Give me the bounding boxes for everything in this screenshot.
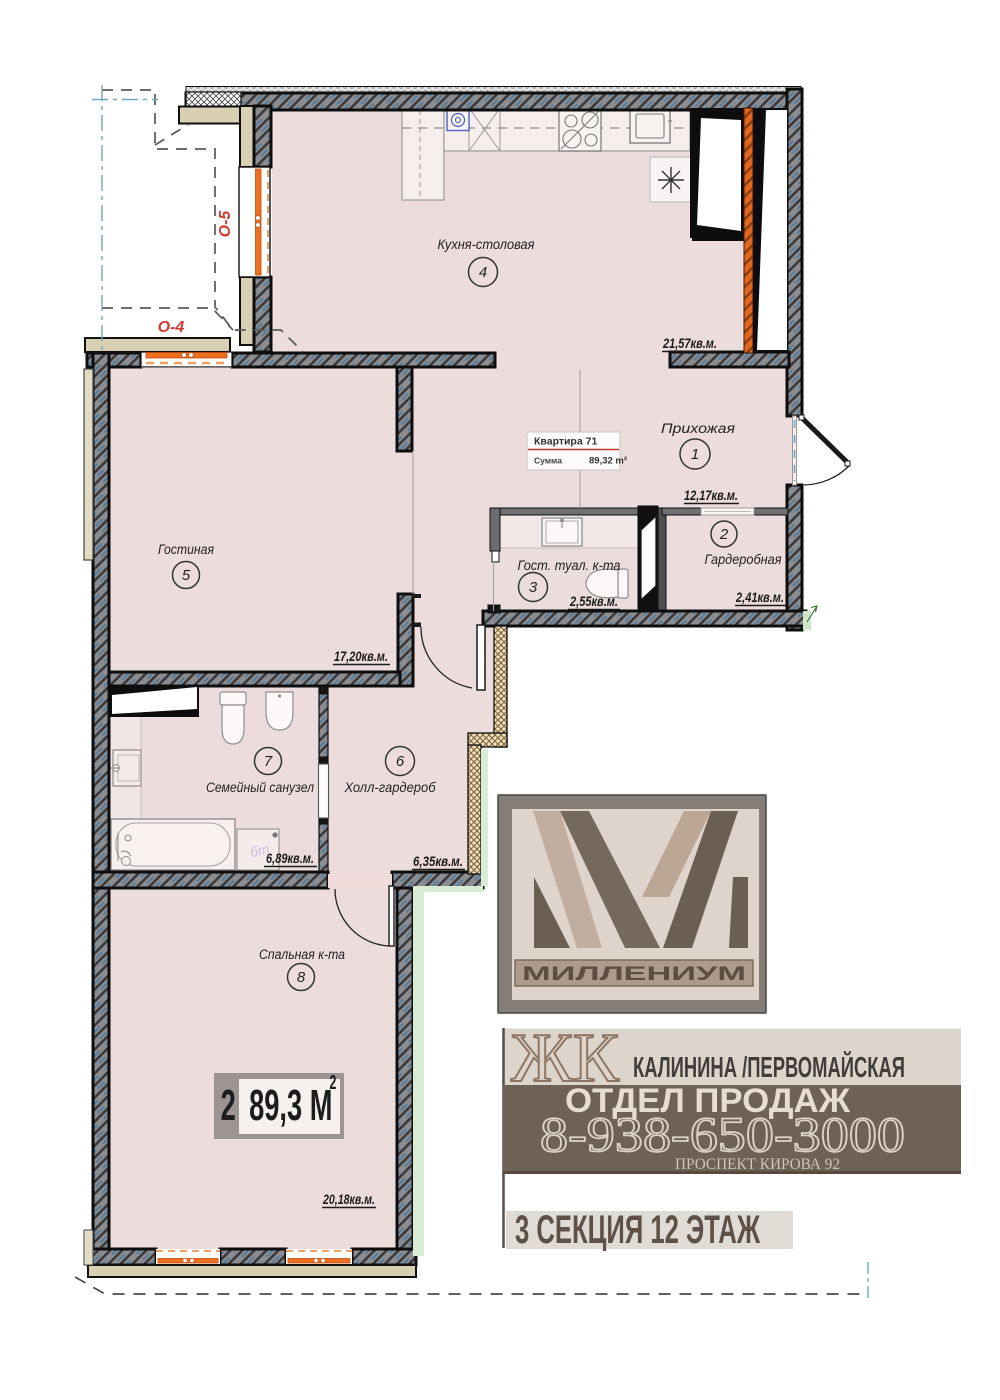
svg-text:О-5: О-5 bbox=[217, 210, 234, 238]
svg-text:3: 3 bbox=[529, 579, 538, 596]
svg-text:Спальная к-та: Спальная к-та bbox=[259, 947, 345, 962]
svg-text:О-4: О-4 bbox=[158, 319, 185, 336]
svg-text:21,57кв.м.: 21,57кв.м. bbox=[662, 336, 717, 351]
svg-text:6: 6 bbox=[396, 753, 405, 770]
svg-text:Сумма: Сумма bbox=[534, 456, 562, 466]
svg-text:4: 4 bbox=[479, 264, 487, 281]
svg-text:Прихожая: Прихожая bbox=[661, 421, 735, 436]
svg-text:МИЛЛЕНИУМ: МИЛЛЕНИУМ bbox=[522, 964, 746, 985]
svg-text:Гостиная: Гостиная bbox=[158, 542, 214, 557]
svg-text:2: 2 bbox=[719, 526, 729, 543]
svg-text:6,35кв.м.: 6,35кв.м. bbox=[413, 854, 463, 869]
svg-text:7: 7 bbox=[264, 753, 273, 770]
svg-text:8: 8 bbox=[297, 969, 306, 986]
svg-text:Гардеробная: Гардеробная bbox=[705, 552, 782, 567]
svg-text:2: 2 bbox=[329, 1071, 336, 1094]
svg-text:17,20кв.м.: 17,20кв.м. bbox=[334, 649, 388, 664]
svg-text:12,17кв.м.: 12,17кв.м. bbox=[684, 488, 738, 503]
svg-text:3 СЕКЦИЯ 12 ЭТАЖ: 3 СЕКЦИЯ 12 ЭТАЖ bbox=[515, 1208, 761, 1252]
svg-text:Холл-гардероб: Холл-гардероб bbox=[344, 780, 436, 795]
svg-text:Кухня-столовая: Кухня-столовая bbox=[438, 237, 535, 252]
svg-text:ПРОСПЕКТ КИРОВА 92: ПРОСПЕКТ КИРОВА 92 bbox=[675, 1156, 840, 1173]
svg-text:2,41кв.м.: 2,41кв.м. bbox=[735, 590, 784, 605]
svg-text:2: 2 bbox=[221, 1080, 236, 1129]
svg-text:1: 1 bbox=[691, 446, 699, 463]
svg-text:Гост. туал. к-та: Гост. туал. к-та bbox=[518, 558, 621, 573]
svg-text:Квартира 71: Квартира 71 bbox=[534, 436, 597, 448]
svg-text:89,32 m²: 89,32 m² bbox=[589, 456, 627, 467]
svg-text:20,18кв.м.: 20,18кв.м. bbox=[322, 1192, 375, 1207]
svg-text:6,89кв.м.: 6,89кв.м. bbox=[266, 851, 314, 866]
svg-text:Семейный санузел: Семейный санузел bbox=[206, 780, 314, 795]
svg-text:8-938-650-3000: 8-938-650-3000 bbox=[540, 1106, 905, 1162]
svg-text:2,55кв.м.: 2,55кв.м. bbox=[569, 594, 618, 609]
svg-text:КАЛИНИНА /ПЕРВОМАЙСКАЯ: КАЛИНИНА /ПЕРВОМАЙСКАЯ bbox=[633, 1050, 905, 1084]
svg-text:5: 5 bbox=[182, 567, 191, 584]
svg-text:89,3 М: 89,3 М bbox=[249, 1080, 332, 1129]
